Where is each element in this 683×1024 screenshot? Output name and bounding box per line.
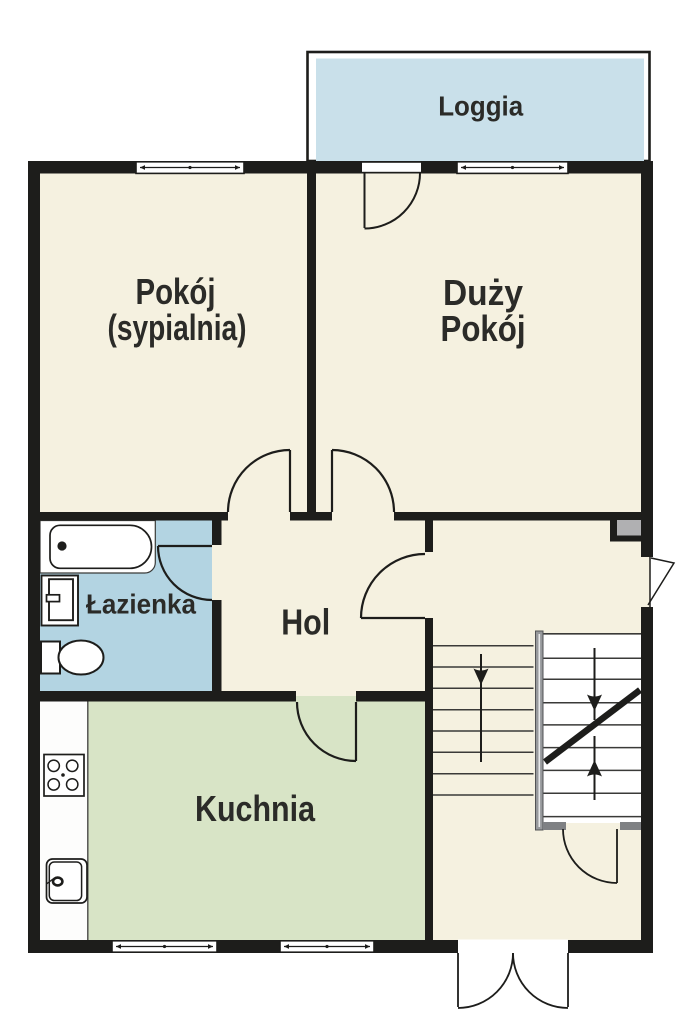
svg-text:(sypialnia): (sypialnia) [108, 307, 247, 348]
svg-text:Duży: Duży [443, 272, 523, 313]
svg-text:Pokój: Pokój [441, 308, 526, 349]
svg-text:Loggia: Loggia [438, 91, 523, 122]
svg-text:Kuchnia: Kuchnia [195, 788, 316, 829]
svg-text:Pokój: Pokój [136, 271, 216, 312]
svg-text:Łazienka: Łazienka [86, 589, 197, 620]
svg-text:Hol: Hol [281, 602, 330, 643]
